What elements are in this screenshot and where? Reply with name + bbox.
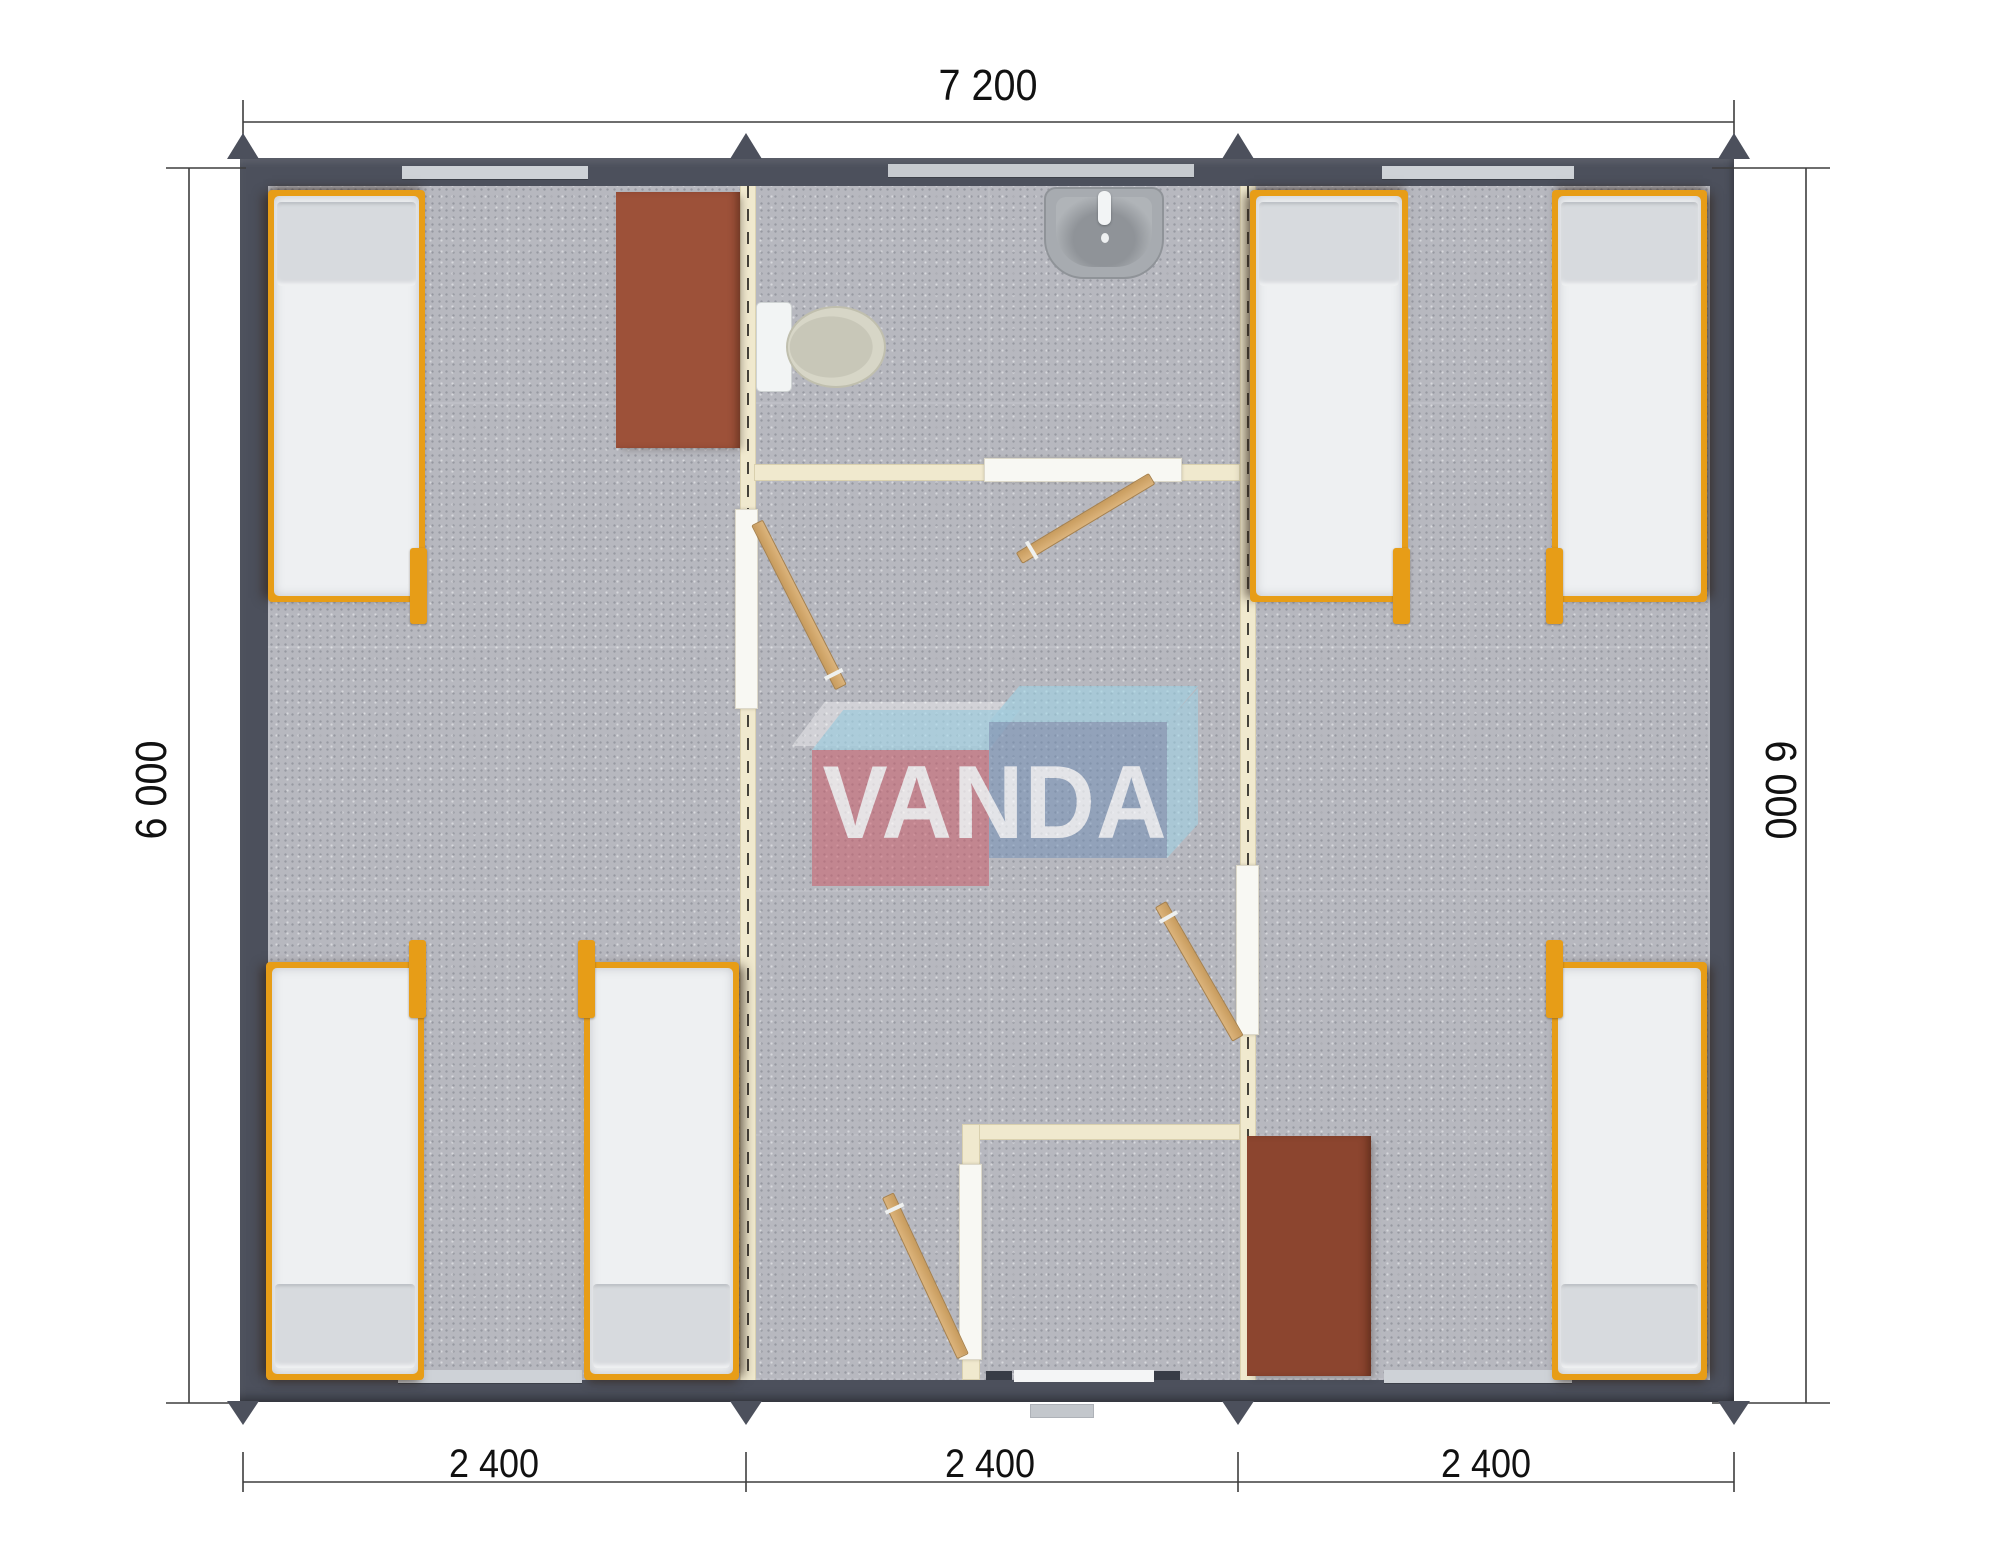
window-top-right-room	[1382, 166, 1574, 179]
sink-icon	[1044, 187, 1164, 279]
bed	[1250, 190, 1408, 602]
window-top-left-room	[402, 166, 588, 179]
bed-frame-bracket	[1393, 548, 1410, 624]
bed-frame-bracket	[1546, 940, 1563, 1018]
floor-plan: VANDA	[0, 0, 2000, 1566]
bed	[268, 190, 425, 602]
logo-blue-box-top-face	[989, 686, 1198, 722]
logo-text: VANDA	[802, 728, 1187, 878]
door-opening-vestibule	[959, 1164, 982, 1360]
window-bottom-left-room	[398, 1370, 582, 1383]
bed-pillow	[1561, 1284, 1698, 1368]
dimension-label-module-1: 2 400	[395, 1440, 593, 1488]
entry-step	[1030, 1404, 1094, 1418]
bed-pillow	[1561, 202, 1698, 286]
bed-frame-bracket	[578, 940, 595, 1018]
bed	[1552, 962, 1707, 1380]
door-opening-left-room	[735, 509, 758, 709]
bed-pillow	[275, 1284, 415, 1368]
partition-wall-left	[740, 186, 756, 1380]
entry-door-jamb-right	[1154, 1371, 1180, 1380]
dimension-label-depth-right: 6 000	[1756, 707, 1804, 873]
dimension-label-width-total: 7 200	[853, 62, 1123, 110]
bed	[1552, 190, 1707, 602]
faucet-knob	[1101, 233, 1109, 243]
dimension-label-module-3: 2 400	[1387, 1440, 1585, 1488]
bed-pillow	[1259, 202, 1399, 286]
entry-door-jamb-left	[986, 1371, 1012, 1380]
toilet-icon	[786, 306, 886, 388]
table	[616, 192, 740, 448]
dimension-label-module-2: 2 400	[891, 1440, 1089, 1488]
bed-pillow	[593, 1284, 730, 1368]
bed-frame-bracket	[409, 940, 426, 1018]
faucet-icon	[1098, 191, 1111, 225]
dimension-label-depth-left: 6 000	[128, 707, 176, 873]
table	[1247, 1136, 1371, 1376]
door-opening-right-room	[1236, 865, 1259, 1035]
bed-frame-bracket	[410, 548, 427, 624]
bed	[584, 962, 739, 1380]
bed	[266, 962, 424, 1380]
bed-frame-bracket	[1546, 548, 1563, 624]
entry-door	[1014, 1370, 1154, 1382]
vestibule-wall-horizontal	[962, 1124, 1240, 1140]
partition-dash-line	[747, 186, 749, 1380]
bed-pillow	[277, 202, 416, 286]
vanda-watermark: VANDA	[790, 680, 1200, 895]
window-bottom-right-room	[1384, 1370, 1572, 1383]
window-bathroom	[888, 164, 1194, 177]
